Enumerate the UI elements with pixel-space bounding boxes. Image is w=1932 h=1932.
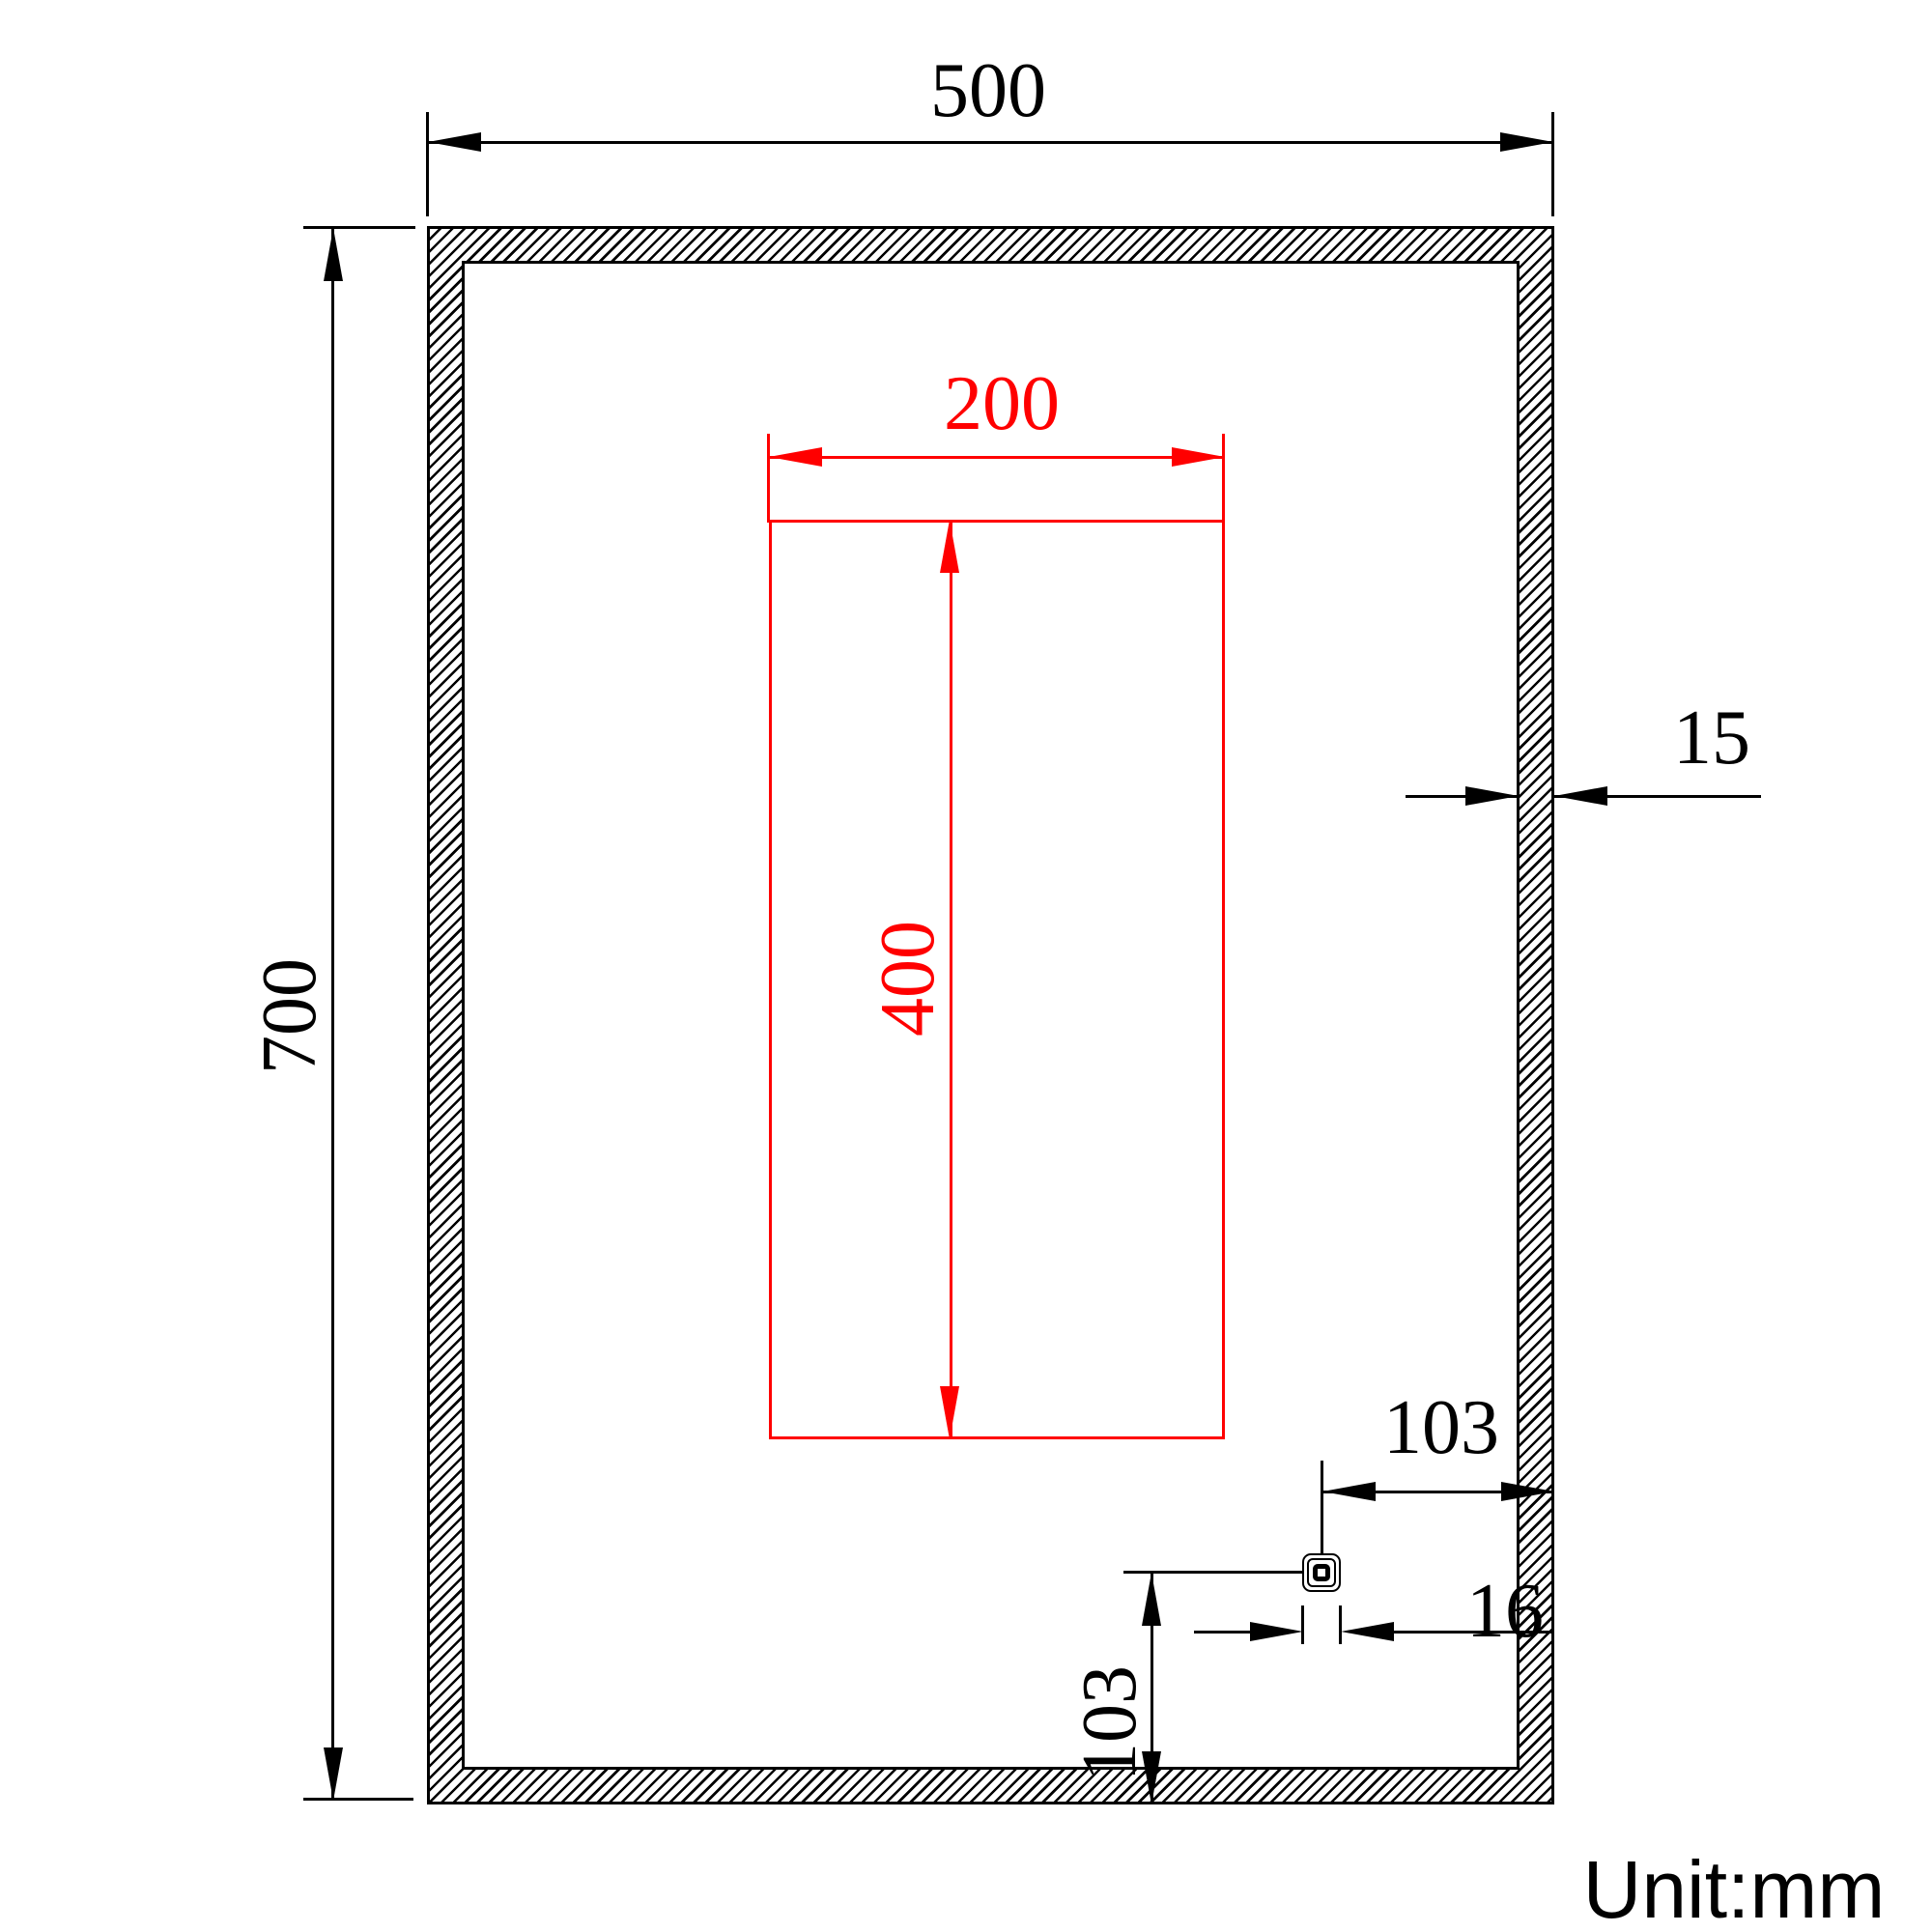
dim-hole-offset-v-arrow-up-icon xyxy=(1142,1573,1161,1626)
dim-outer-width-arrow-left-icon xyxy=(428,132,481,152)
dim-hole-offset-v-label: 103 xyxy=(1069,1636,1151,1810)
unit-label: Unit:mm xyxy=(1575,1847,1893,1932)
dim-hole-offset-h-arrow-left-icon xyxy=(1322,1482,1376,1501)
dim-outer-width-ext-left xyxy=(426,112,429,216)
dim-outer-width-line xyxy=(428,141,1552,144)
dim-wall-thickness-label: 15 xyxy=(1634,697,1789,779)
dim-inner-height-arrow-up-icon xyxy=(940,520,959,573)
dim-hole-offset-h-ext xyxy=(1321,1461,1323,1560)
dim-hole-offset-h-label: 103 xyxy=(1354,1387,1528,1468)
dim-hole-size-label: 16 xyxy=(1428,1571,1582,1652)
dim-inner-width-line xyxy=(769,456,1225,459)
dim-outer-width-ext-right xyxy=(1551,112,1554,216)
dim-wall-thickness-arrow-right-icon xyxy=(1465,786,1519,806)
dim-outer-height-arrow-up-icon xyxy=(324,228,343,281)
dim-outer-height-tick-bottom xyxy=(303,1798,413,1801)
dim-outer-width-arrow-right-icon xyxy=(1500,132,1553,152)
dim-outer-width-label: 500 xyxy=(911,50,1065,131)
dim-outer-height-arrow-down-icon xyxy=(324,1747,343,1801)
dim-hole-size-arrow-left-icon xyxy=(1341,1622,1394,1641)
dim-hole-size-arrow-right-icon xyxy=(1250,1622,1303,1641)
dim-wall-thickness-arrow-left-icon xyxy=(1554,786,1607,806)
technical-drawing: 500 700 15 200 400 103 16 103 Unit:mm xyxy=(0,0,1932,1932)
dim-hole-offset-h-arrow-right-icon xyxy=(1501,1482,1554,1501)
inner-rectangle-outline xyxy=(769,520,1225,1439)
dim-outer-height-tick-top xyxy=(303,226,415,229)
dim-inner-width-arrow-left-icon xyxy=(769,447,822,467)
dim-inner-height-label: 400 xyxy=(867,894,949,1064)
dim-outer-height-label: 700 xyxy=(249,939,330,1094)
dim-inner-width-arrow-right-icon xyxy=(1172,447,1225,467)
dim-inner-width-label: 200 xyxy=(924,363,1079,444)
hole-outline-inner xyxy=(1313,1564,1330,1581)
dim-inner-height-arrow-down-icon xyxy=(940,1386,959,1439)
dim-hole-size-tail-left xyxy=(1194,1631,1252,1634)
